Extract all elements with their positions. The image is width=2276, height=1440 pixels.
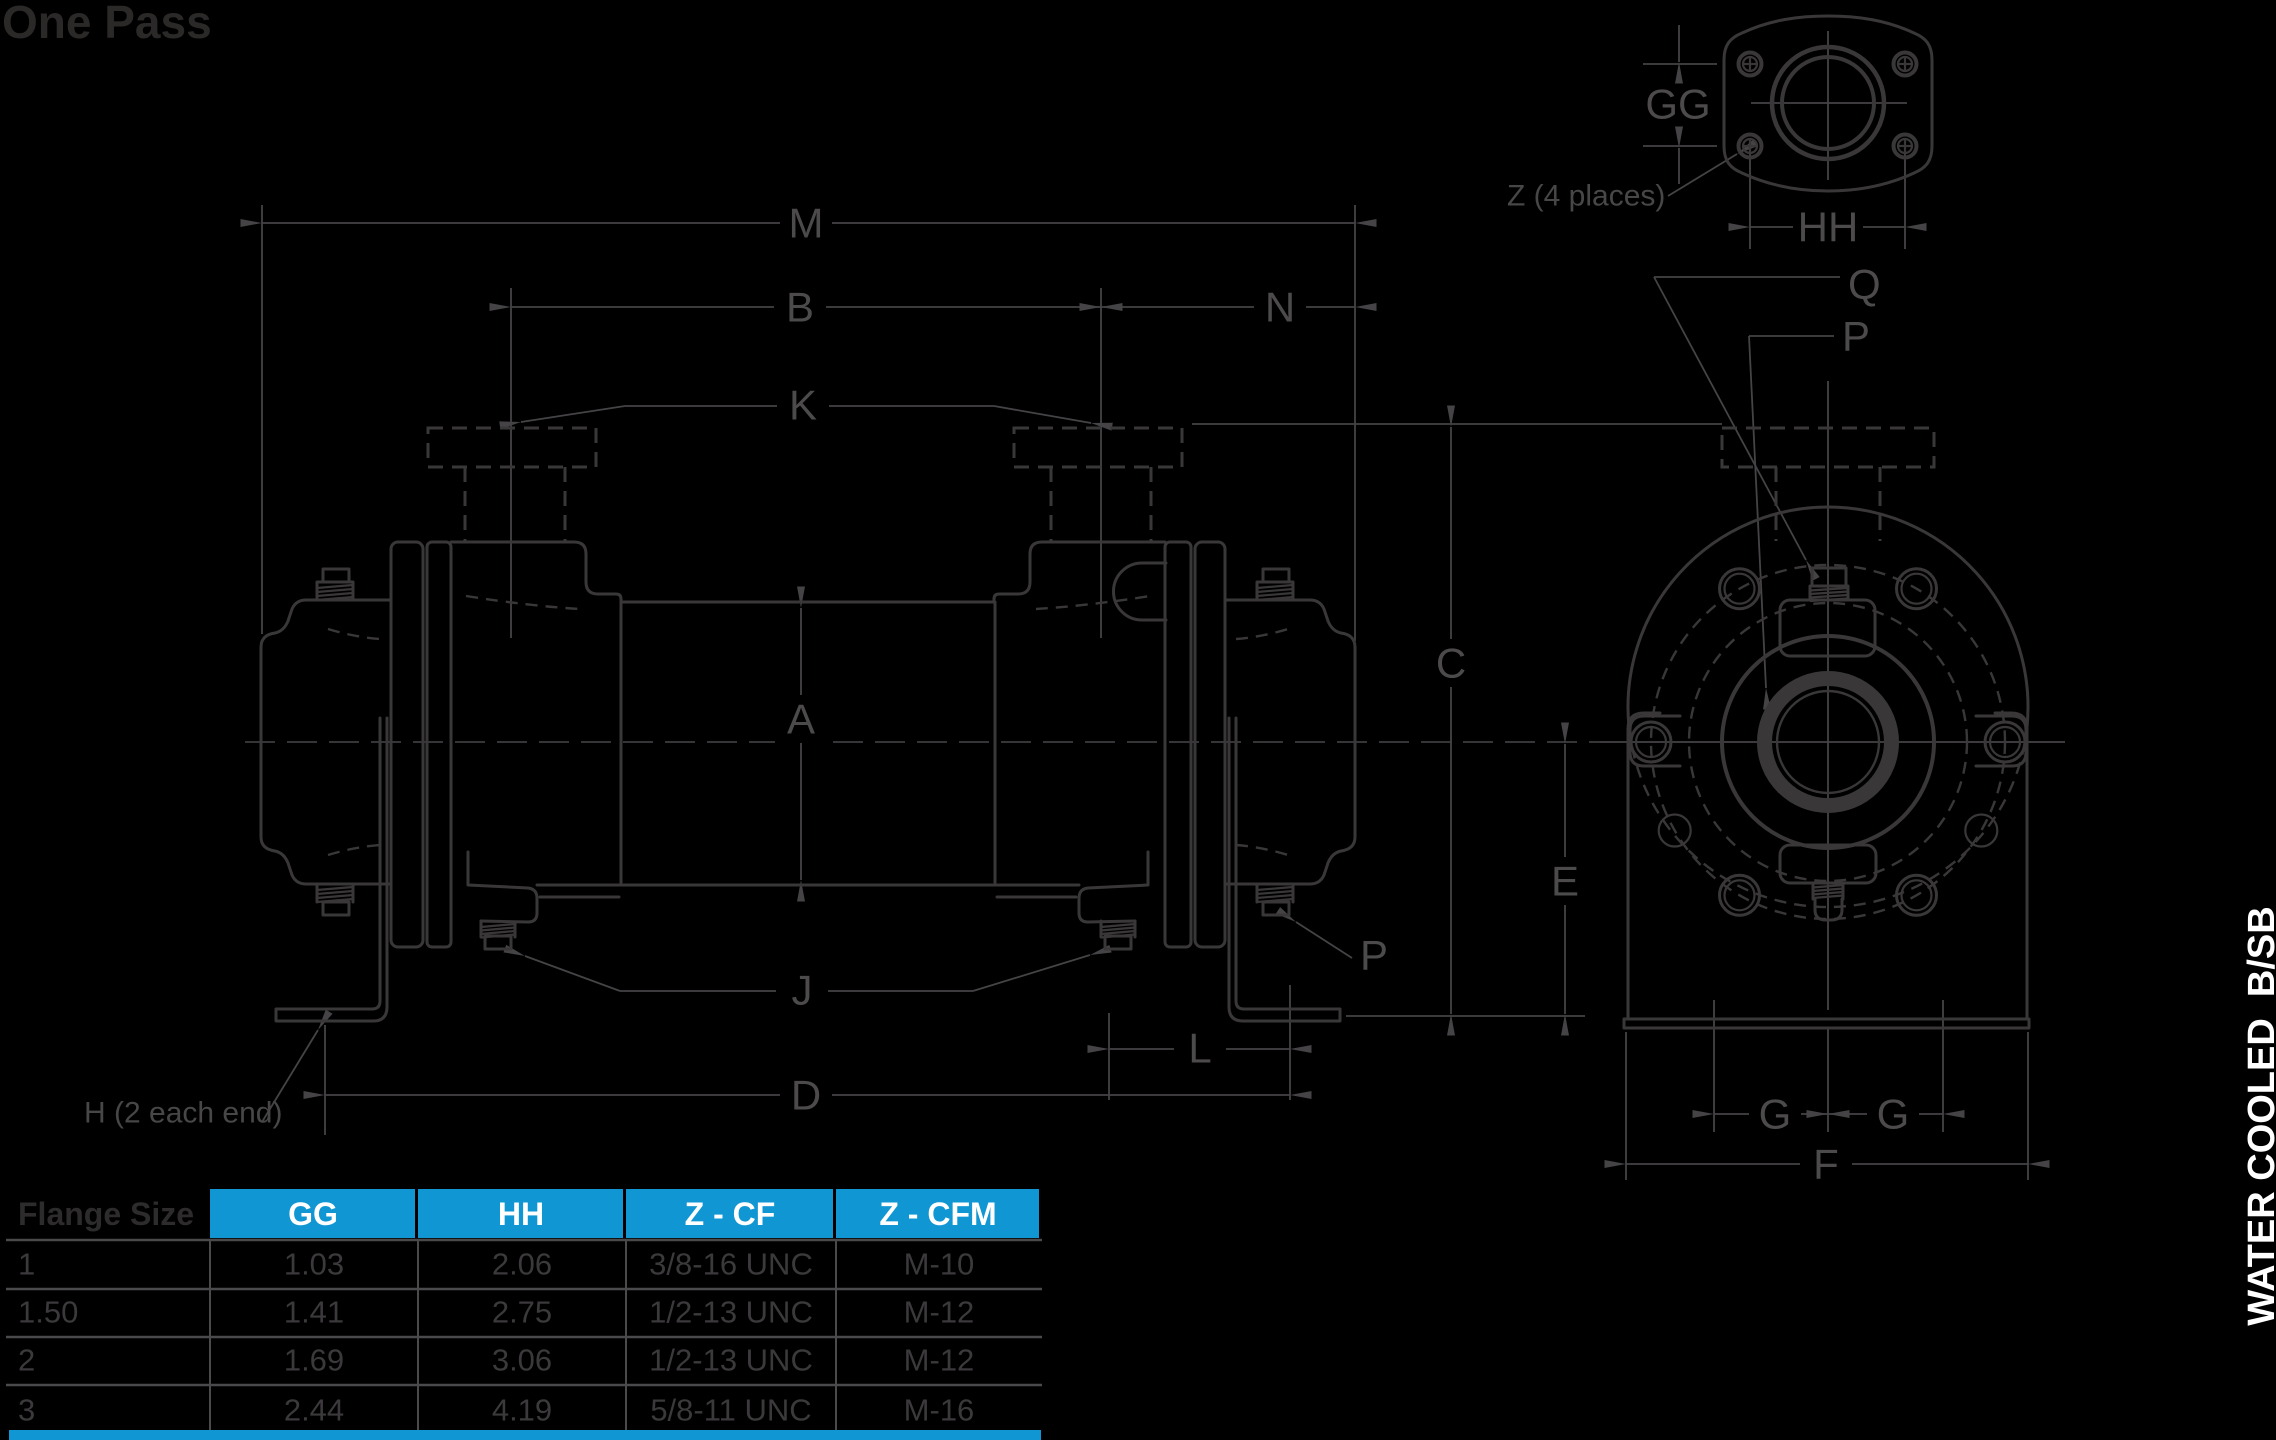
svg-text:N: N (1265, 284, 1295, 331)
svg-text:A: A (787, 696, 815, 743)
svg-text:P: P (1360, 932, 1388, 979)
svg-text:G: G (1877, 1091, 1910, 1138)
svg-text:G: G (1759, 1091, 1792, 1138)
svg-text:1/2-13 UNC: 1/2-13 UNC (649, 1343, 813, 1378)
svg-text:1.03: 1.03 (284, 1247, 344, 1282)
svg-text:3: 3 (18, 1393, 35, 1428)
svg-text:WATER COOLED B/SB: WATER COOLED B/SB (2241, 906, 2276, 1325)
svg-text:GG: GG (288, 1196, 338, 1232)
svg-text:M: M (789, 200, 824, 247)
svg-text:2.44: 2.44 (284, 1393, 344, 1428)
svg-text:Z - CF: Z - CF (685, 1196, 776, 1232)
svg-text:E: E (1551, 858, 1579, 905)
svg-text:M-16: M-16 (904, 1393, 975, 1428)
svg-text:1: 1 (18, 1247, 35, 1282)
svg-text:M-10: M-10 (904, 1247, 975, 1282)
svg-text:B: B (786, 284, 814, 331)
svg-text:2: 2 (18, 1343, 35, 1378)
svg-text:Z - CFM: Z - CFM (879, 1196, 996, 1232)
svg-text:2.06: 2.06 (492, 1247, 552, 1282)
svg-text:1.69: 1.69 (284, 1343, 344, 1378)
svg-text:1.41: 1.41 (284, 1295, 344, 1330)
svg-text:M-12: M-12 (904, 1295, 975, 1330)
svg-text:M-12: M-12 (904, 1343, 975, 1378)
svg-text:4.19: 4.19 (492, 1393, 552, 1428)
svg-text:K: K (789, 382, 817, 429)
svg-text:1.50: 1.50 (18, 1295, 78, 1330)
svg-text:GG: GG (1645, 81, 1710, 128)
svg-text:3.06: 3.06 (492, 1343, 552, 1378)
svg-text:J: J (792, 967, 813, 1014)
svg-text:3/8-16 UNC: 3/8-16 UNC (649, 1247, 813, 1282)
svg-text:H (2 each end): H (2 each end) (84, 1097, 282, 1130)
svg-text:L: L (1188, 1025, 1211, 1072)
svg-text:1/2-13 UNC: 1/2-13 UNC (649, 1295, 813, 1330)
svg-text:F: F (1813, 1141, 1839, 1188)
svg-text:2.75: 2.75 (492, 1295, 552, 1330)
svg-text:C: C (1436, 640, 1466, 687)
svg-text:P: P (1842, 313, 1870, 360)
svg-text:Flange Size: Flange Size (18, 1196, 194, 1232)
svg-text:Z (4 places): Z (4 places) (1507, 180, 1665, 213)
svg-text:HH: HH (498, 1196, 544, 1232)
svg-text:Q: Q (1848, 261, 1881, 308)
svg-text:One Pass: One Pass (2, 0, 212, 48)
svg-text:HH: HH (1798, 204, 1859, 251)
svg-text:D: D (791, 1072, 821, 1119)
svg-text:5/8-11 UNC: 5/8-11 UNC (650, 1393, 811, 1428)
